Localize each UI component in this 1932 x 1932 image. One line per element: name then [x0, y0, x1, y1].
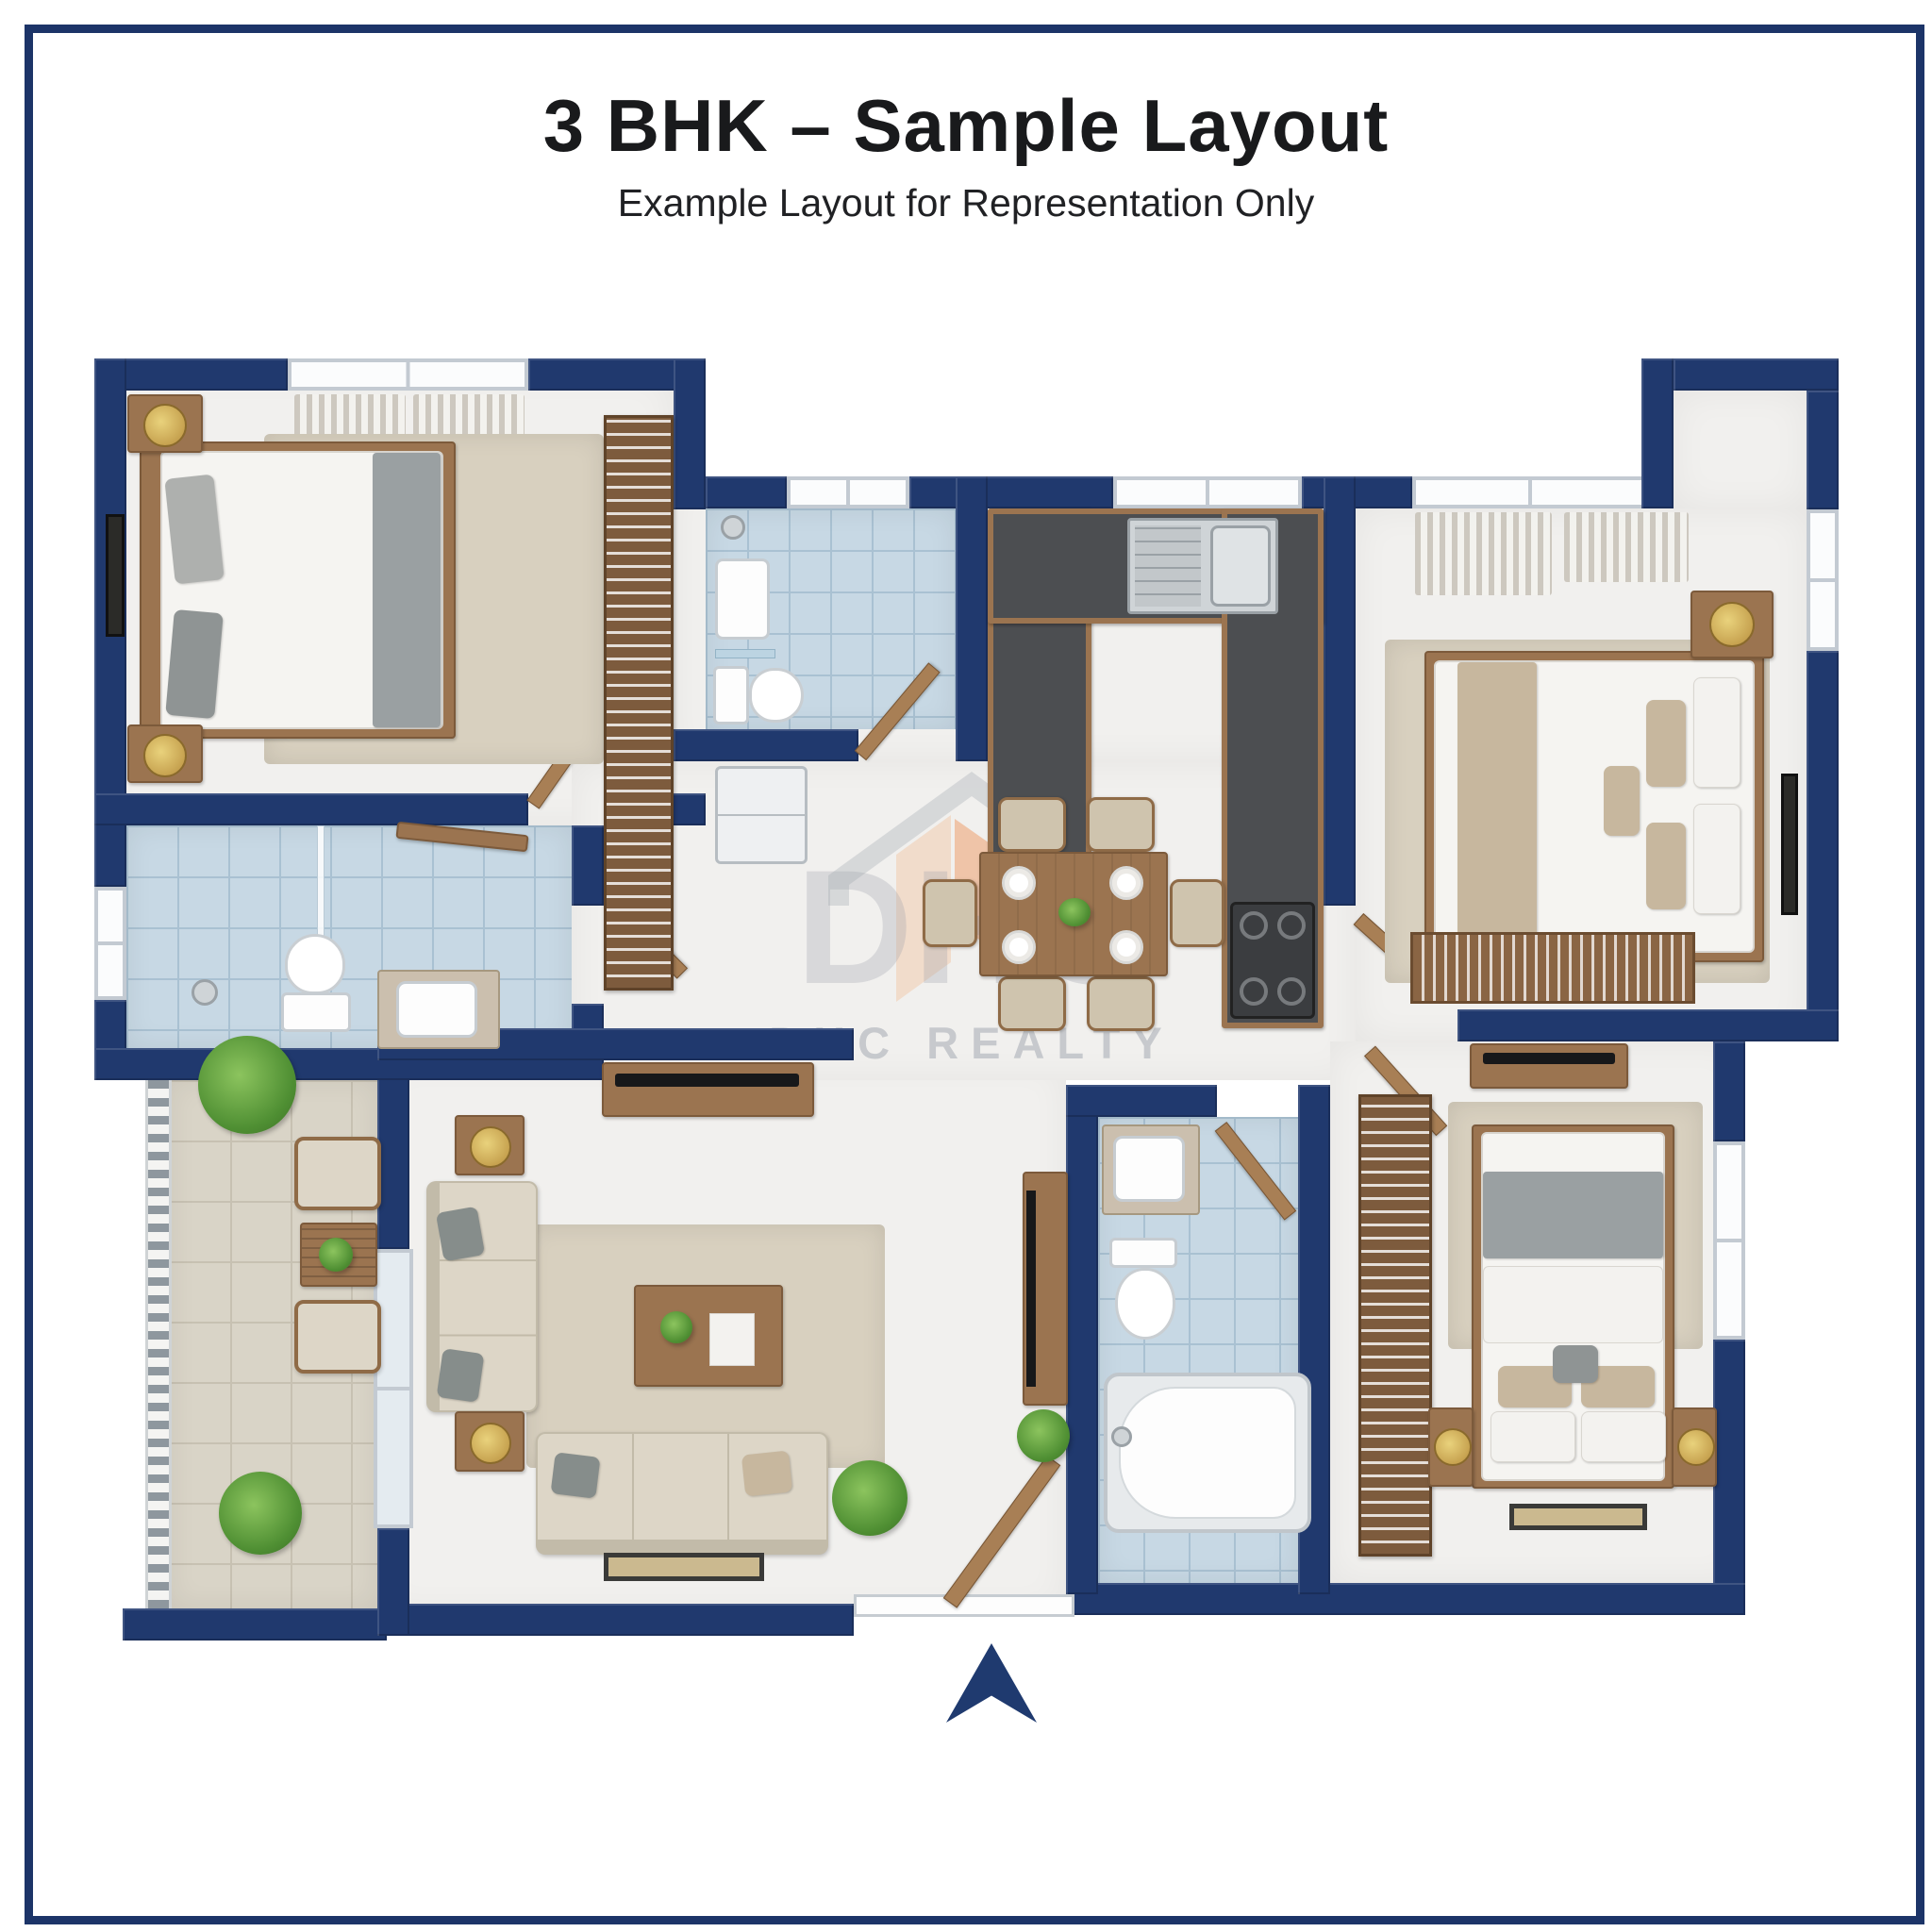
dining-chair: [1087, 797, 1155, 852]
table-lamp: [143, 404, 187, 447]
shower-head: [721, 515, 745, 540]
toilet-bowl: [285, 934, 345, 994]
page-title: 3 BHK – Sample Layout: [0, 83, 1932, 169]
balcony-armchair: [294, 1300, 381, 1374]
pillow: [1693, 677, 1740, 788]
wall-segment: [1713, 1041, 1745, 1141]
page-subtitle: Example Layout for Representation Only: [0, 181, 1932, 225]
table-plant: [319, 1238, 353, 1272]
bedroom3-throw-blanket: [1483, 1172, 1663, 1258]
bedroom1-window: [288, 358, 528, 391]
doormat: [1509, 1504, 1647, 1530]
burner: [1277, 977, 1306, 1006]
potted-plant: [1017, 1409, 1070, 1462]
pillow: [1604, 766, 1640, 836]
wash-basin: [396, 981, 477, 1038]
dining-chair: [998, 976, 1066, 1031]
toilet-bowl: [1115, 1268, 1175, 1340]
wall-segment: [1807, 651, 1839, 1041]
wall-segment: [94, 793, 528, 825]
wall-segment: [1066, 1583, 1745, 1615]
bedroom3-wardrobe: [1358, 1094, 1432, 1557]
toilet-tank: [281, 992, 351, 1032]
burner: [1240, 977, 1268, 1006]
table-lamp: [1709, 602, 1755, 647]
wall-segment: [674, 729, 858, 761]
dining-chair: [998, 797, 1066, 852]
burner: [1277, 911, 1306, 940]
pillow: [1581, 1411, 1666, 1462]
wall-segment: [377, 1060, 409, 1249]
wall-segment: [377, 1528, 409, 1636]
bathroom1-window: [787, 476, 909, 508]
wall-segment: [706, 476, 787, 508]
plate: [1109, 866, 1143, 900]
coffee-table-plant: [660, 1311, 692, 1343]
plate: [1002, 866, 1036, 900]
common-bathroom-window: [94, 887, 126, 1000]
wall-segment: [572, 825, 604, 906]
dining-chair: [1170, 879, 1224, 947]
pillow: [1646, 700, 1686, 787]
tv-console: [602, 1062, 814, 1117]
wash-basin: [1113, 1136, 1185, 1202]
bath-faucet: [1111, 1426, 1132, 1447]
wall-segment: [1674, 358, 1839, 391]
potted-plant: [198, 1036, 296, 1134]
wall-segment: [1457, 1009, 1839, 1041]
tv-dresser: [1470, 1043, 1628, 1089]
potted-plant: [832, 1460, 908, 1536]
pillow: [165, 609, 224, 719]
bedroom2-window-top: [1412, 476, 1648, 508]
pillow: [1646, 823, 1686, 909]
wall-segment: [956, 476, 988, 761]
burner: [1240, 911, 1268, 940]
toilet-bowl: [749, 668, 804, 723]
dining-chair: [1087, 976, 1155, 1031]
glass-shelf: [715, 649, 775, 658]
bedroom2-floor-upper: [1674, 391, 1807, 508]
curtain: [1564, 512, 1689, 582]
wall-segment: [1641, 358, 1674, 508]
wall-segment: [1302, 476, 1412, 508]
bookshelf: [1410, 932, 1695, 1004]
bedroom3-window: [1713, 1141, 1745, 1340]
sofa-pillow: [741, 1451, 792, 1497]
wall-segment: [909, 476, 1113, 508]
balcony-armchair: [294, 1137, 381, 1210]
bathtub-basin: [1119, 1387, 1296, 1519]
wall-segment: [1066, 1085, 1217, 1117]
toilet-tank: [713, 666, 749, 724]
wall-segment: [674, 358, 706, 509]
wall-art: [106, 514, 125, 637]
table-lamp: [1434, 1428, 1472, 1466]
table-centerpiece: [1058, 898, 1091, 926]
sink-drainboard: [1135, 525, 1201, 607]
bedroom2-throw-blanket: [1457, 662, 1537, 951]
balcony-railing: [145, 1080, 172, 1608]
toilet-tank: [1109, 1238, 1177, 1268]
floorplan-poster: 3 BHK – Sample Layout Example Layout for…: [0, 0, 1932, 1932]
bedroom1-throw-blanket: [373, 453, 441, 727]
kitchen-window: [1113, 476, 1302, 508]
pillow: [1693, 804, 1740, 914]
pillow: [1491, 1411, 1575, 1462]
dining-chair: [923, 879, 977, 947]
wash-basin: [715, 558, 770, 640]
refrigerator: [715, 766, 808, 864]
plate: [1109, 930, 1143, 964]
television-vertical: [1026, 1191, 1036, 1387]
bedroom2-window-right: [1807, 509, 1839, 651]
coffee-table-book: [709, 1313, 755, 1366]
bedroom1-wardrobe: [604, 415, 674, 991]
wall-segment: [123, 1608, 387, 1641]
wall-segment: [1066, 1085, 1098, 1594]
wall-art: [1781, 774, 1798, 915]
doormat: [604, 1553, 764, 1581]
table-lamp: [470, 1423, 511, 1464]
table-lamp: [1677, 1428, 1715, 1466]
wall-segment: [1807, 391, 1839, 509]
table-lamp: [143, 734, 187, 777]
wall-segment: [377, 1604, 854, 1636]
wall-segment: [1324, 476, 1356, 906]
sofa-pillow: [437, 1348, 485, 1403]
wall-segment: [1713, 1340, 1745, 1615]
sofa-pillow: [436, 1207, 485, 1262]
table-lamp: [470, 1126, 511, 1168]
sink-basin: [1210, 525, 1271, 607]
television: [615, 1074, 799, 1087]
television: [1483, 1053, 1615, 1064]
sofa-pillow: [550, 1452, 600, 1499]
pillow: [1553, 1345, 1598, 1383]
plate: [1002, 930, 1036, 964]
potted-plant: [219, 1472, 302, 1555]
duvet-fold: [1483, 1266, 1663, 1343]
curtain: [1415, 512, 1552, 595]
balcony-glass-door: [374, 1249, 413, 1528]
coffee-table: [634, 1285, 783, 1387]
shower-drain: [192, 979, 218, 1006]
